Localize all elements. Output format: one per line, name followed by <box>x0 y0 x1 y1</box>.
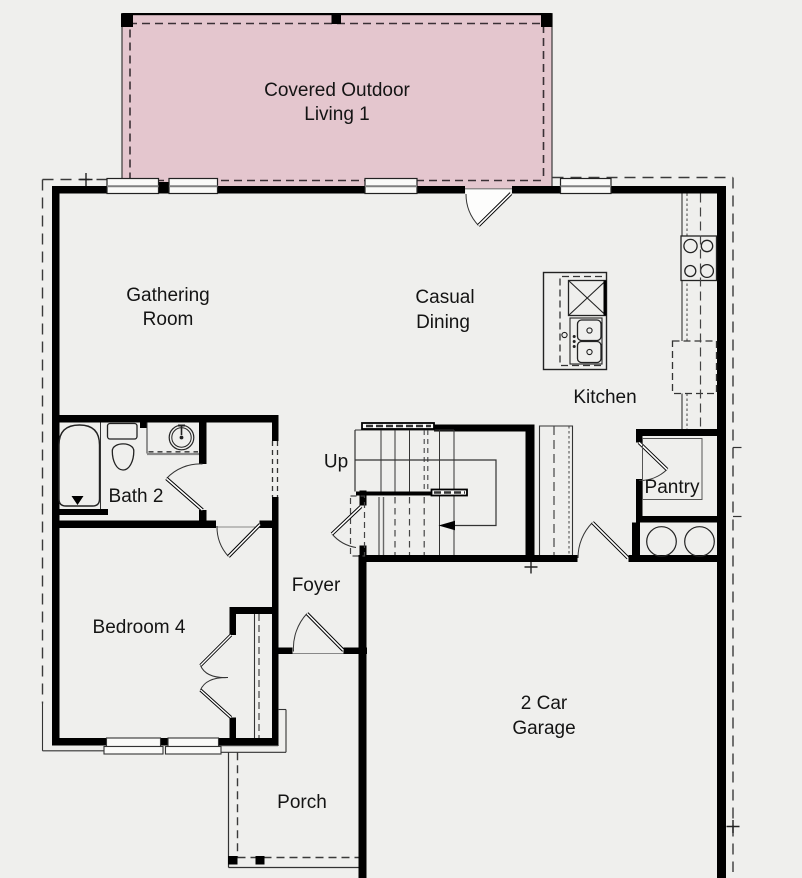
svg-text:Covered Outdoor: Covered Outdoor <box>264 80 410 101</box>
svg-text:Gathering: Gathering <box>126 285 209 306</box>
svg-text:Room: Room <box>143 309 194 330</box>
svg-text:Casual: Casual <box>415 287 474 308</box>
svg-text:Living 1: Living 1 <box>304 104 370 125</box>
svg-text:Pantry: Pantry <box>645 477 700 498</box>
svg-text:2 Car: 2 Car <box>521 693 568 714</box>
svg-text:Up: Up <box>324 452 348 473</box>
svg-text:Bedroom 4: Bedroom 4 <box>93 617 186 638</box>
svg-text:Kitchen: Kitchen <box>573 387 636 408</box>
svg-text:Bath 2: Bath 2 <box>109 486 164 507</box>
svg-text:Garage: Garage <box>512 718 575 739</box>
svg-text:Porch: Porch <box>277 792 327 813</box>
svg-text:Dining: Dining <box>416 312 470 333</box>
svg-text:Foyer: Foyer <box>292 575 341 596</box>
